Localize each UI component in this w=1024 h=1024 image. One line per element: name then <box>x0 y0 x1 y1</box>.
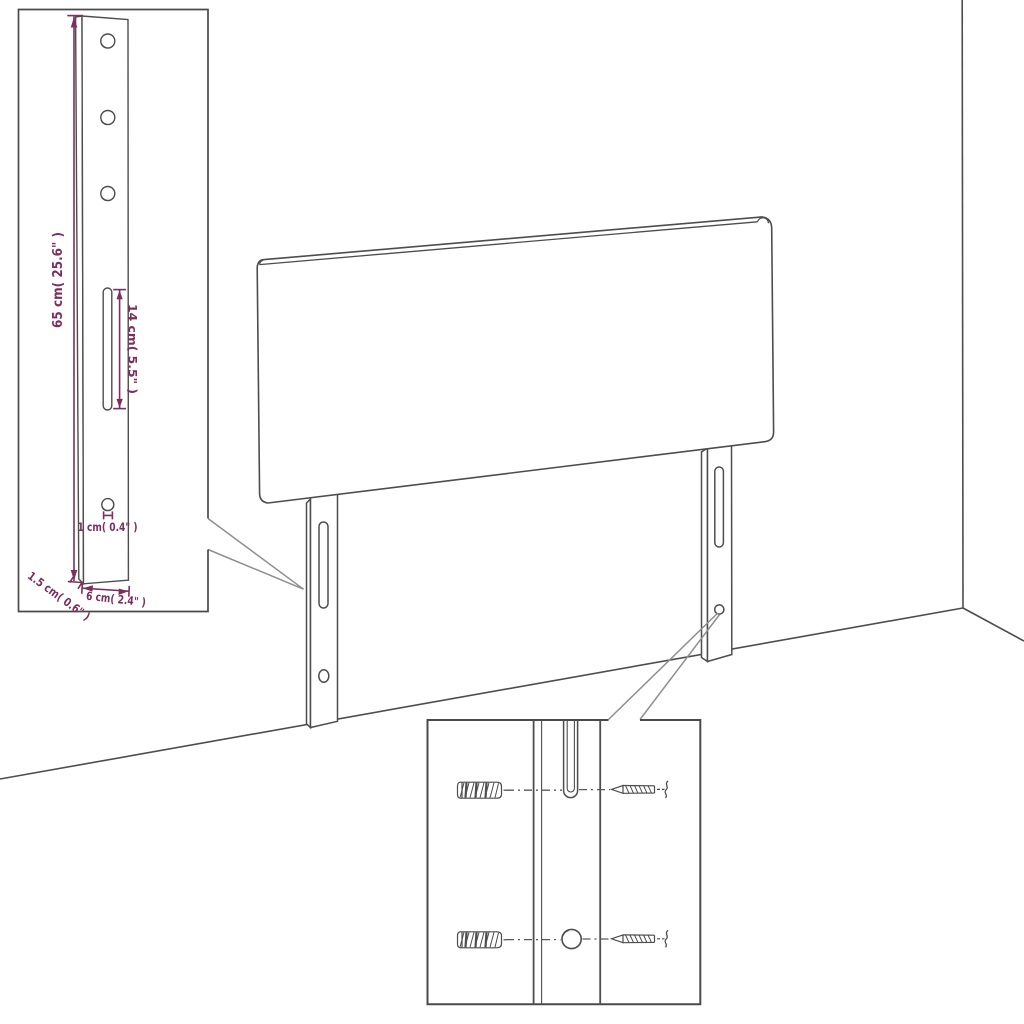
slot-dimension-label: 14 cm( 5.5" ) <box>126 304 140 394</box>
callout-left-inset-lower <box>208 550 304 590</box>
wall-corner-line <box>962 0 963 608</box>
callout-bottom-inset-left <box>609 613 718 720</box>
callout-left-inset-upper <box>208 519 304 590</box>
leg-left-slot <box>319 522 328 608</box>
hole-dimension-label: 1 cm( 0.4" ) <box>78 520 138 534</box>
leg-right-slot <box>715 467 724 547</box>
callout-bottom-inset-right <box>640 615 720 720</box>
headboard-leg-left <box>307 489 338 728</box>
inset-slot <box>103 288 112 410</box>
product-dimension-diagram: 65 cm( 25.6" ) 14 cm( 5.5" ) 1 cm( 0.4" … <box>0 0 1024 1024</box>
mounting-detail-inset <box>428 720 701 1004</box>
leg-detail-inset: 65 cm( 25.6" ) 14 cm( 5.5" ) 1 cm( 0.4" … <box>19 10 209 624</box>
headboard-leg-right <box>702 441 732 662</box>
panel-outline <box>257 217 773 503</box>
leg-left-hole <box>319 670 329 683</box>
floor-line-right <box>963 608 1024 641</box>
headboard-panel <box>257 217 773 503</box>
leg-right-side-face <box>702 448 708 662</box>
height-dimension-label: 65 cm( 25.6" ) <box>51 232 66 328</box>
callout-lines <box>208 519 720 720</box>
leg-right-hole <box>715 605 724 614</box>
